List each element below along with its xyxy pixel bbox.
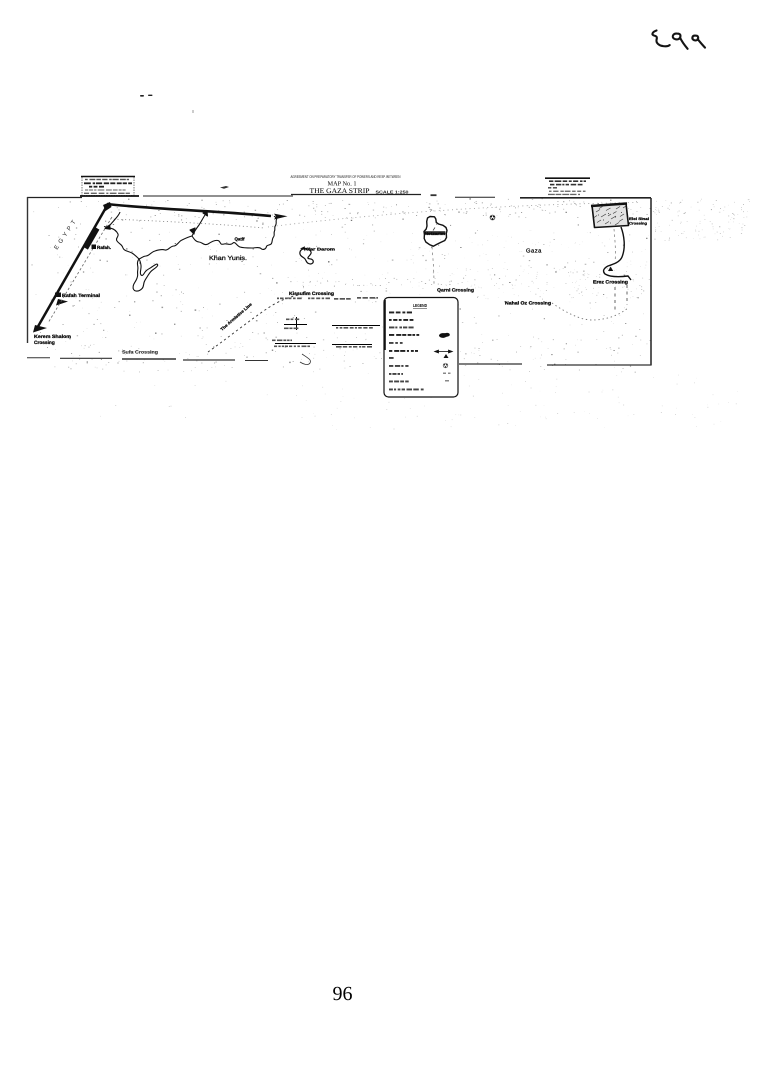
svg-text:LEGEND: LEGEND — [413, 303, 427, 308]
svg-text:Qatif: Qatif — [235, 237, 246, 242]
svg-text:Kissufim Crossing: Kissufim Crossing — [289, 291, 334, 297]
svg-text:Qarni Crossing: Qarni Crossing — [437, 288, 474, 293]
svg-text:Khan Yunis.: Khan Yunis. — [209, 255, 247, 262]
svg-text:Nahal Oz Crossing: Nahal Oz Crossing — [505, 301, 551, 306]
svg-text:THE GAZA STRIP: THE GAZA STRIP — [310, 187, 370, 195]
svg-text:Kerem Shalom: Kerem Shalom — [34, 334, 71, 340]
svg-text:SCALE 1:250: SCALE 1:250 — [376, 190, 410, 195]
svg-text:Crossing: Crossing — [34, 340, 55, 346]
svg-text:AGREEMENT ON PREPARATORY TRANS: AGREEMENT ON PREPARATORY TRANSFER OF POW… — [291, 174, 401, 179]
svg-text:Erez Crossing: Erez Crossing — [593, 280, 628, 286]
svg-text:Elei Sinai: Elei Sinai — [629, 217, 649, 221]
svg-text:Netzarim: Netzarim — [425, 231, 446, 236]
svg-text:Kfar Darom: Kfar Darom — [304, 247, 336, 252]
svg-text:Rafah.: Rafah. — [97, 245, 111, 250]
svg-text:Rafah Terminal: Rafah Terminal — [62, 293, 100, 299]
svg-text:Sufa Crossing: Sufa Crossing — [122, 350, 158, 355]
svg-text:96: 96 — [333, 983, 353, 1005]
svg-text:Crossing: Crossing — [629, 222, 647, 226]
svg-text:Gaza: Gaza — [526, 248, 542, 255]
